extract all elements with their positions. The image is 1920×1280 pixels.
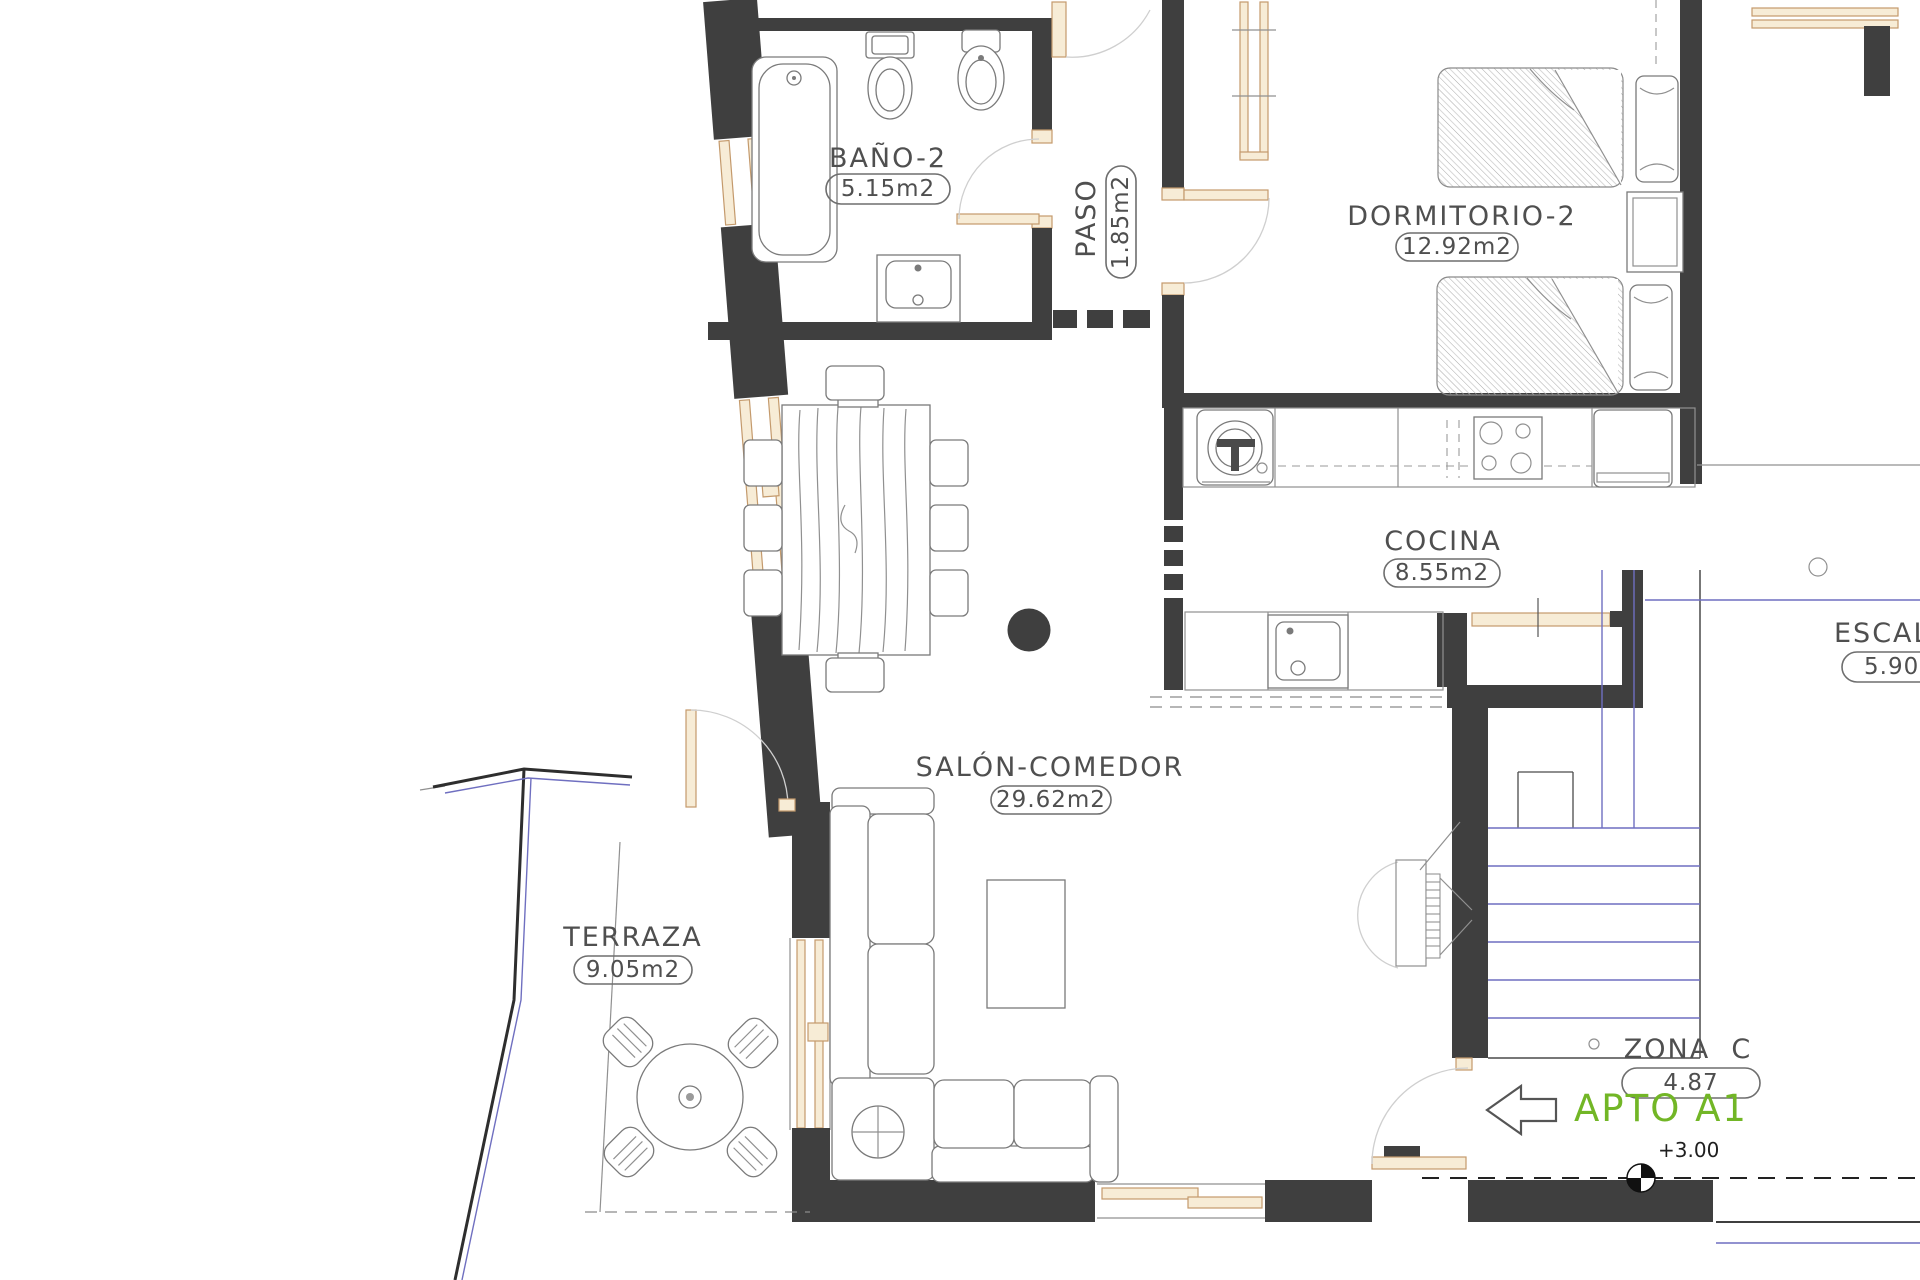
wall-kitchen-top xyxy=(1183,393,1695,408)
dining-table xyxy=(782,398,930,662)
bathtub xyxy=(752,57,837,262)
kitchen-sink-counter xyxy=(1185,612,1443,690)
room-label-salon: SALÓN-COMEDOR 29.62m2 xyxy=(916,751,1185,814)
floorplan-page: BAÑO-2 5.15m2 PASO 1.85m2 DORMITORIO-2 1… xyxy=(0,0,1920,1280)
svg-text:12.92m2: 12.92m2 xyxy=(1402,234,1512,260)
svg-text:COCINA: COCINA xyxy=(1384,526,1502,557)
svg-text:8.55m2: 8.55m2 xyxy=(1395,560,1489,586)
window-top-right xyxy=(1752,8,1898,16)
window-west-1 xyxy=(719,141,736,226)
apto-label: APTO A1 xyxy=(1574,1087,1748,1130)
wall-stairs-left xyxy=(1452,708,1488,1058)
svg-text:PASO: PASO xyxy=(1071,178,1102,257)
room-label-dormitorio: DORMITORIO-2 12.92m2 xyxy=(1347,201,1576,261)
wall-bath-top xyxy=(746,18,1052,31)
fridge xyxy=(1594,410,1672,487)
svg-text:ESCAL: ESCAL xyxy=(1834,618,1920,649)
column xyxy=(1008,609,1051,652)
floorplan-drawing: BAÑO-2 5.15m2 PASO 1.85m2 DORMITORIO-2 1… xyxy=(0,0,1920,1280)
bidet xyxy=(958,30,1004,110)
toilet xyxy=(866,32,914,119)
wall-counter-end xyxy=(1437,613,1467,687)
door-paso-top xyxy=(1052,2,1066,57)
room-label-terraza: TERRAZA 9.05m2 xyxy=(562,922,702,984)
window-west-2 xyxy=(739,400,764,587)
terrace-table xyxy=(637,1044,743,1150)
room-label-escalera: ESCAL 5.90 xyxy=(1834,618,1920,682)
door-bathroom xyxy=(957,214,1039,224)
wall-bath-right xyxy=(1032,31,1052,130)
washing-machine xyxy=(1197,410,1273,485)
wall-bottom-right xyxy=(1468,1180,1713,1222)
door-terraza xyxy=(686,710,696,807)
level-marker xyxy=(1627,1164,1655,1192)
bed-2 xyxy=(1437,277,1672,395)
washbasin xyxy=(877,255,960,322)
sofa xyxy=(830,788,1118,1182)
svg-text:SALÓN-COMEDOR: SALÓN-COMEDOR xyxy=(916,751,1185,783)
svg-text:5.15m2: 5.15m2 xyxy=(841,176,935,202)
svg-text:ZONA C: ZONA C xyxy=(1624,1034,1752,1065)
wall-salon-west xyxy=(792,802,830,938)
window-salon-west xyxy=(790,938,830,1130)
svg-text:29.62m2: 29.62m2 xyxy=(996,787,1106,813)
level-label: +3.00 xyxy=(1658,1138,1719,1162)
wall-bath-bottom xyxy=(708,322,1052,340)
nightstand xyxy=(1627,192,1683,272)
terraza xyxy=(420,769,810,1280)
room-label-paso: PASO 1.85m2 xyxy=(1071,166,1136,278)
wall-bottom-mid xyxy=(1265,1180,1372,1222)
svg-text:5.90: 5.90 xyxy=(1864,654,1919,680)
wall-paso-dashed xyxy=(1053,310,1150,328)
wall-dorm-left xyxy=(1162,0,1184,188)
kitchen xyxy=(1150,408,1695,707)
pass-through-window xyxy=(1472,598,1627,637)
entrance-arrow-icon xyxy=(1487,1086,1556,1134)
window-bottom xyxy=(1097,1184,1265,1218)
svg-text:TERRAZA: TERRAZA xyxy=(562,922,702,953)
bed-1 xyxy=(1438,68,1678,187)
svg-text:BAÑO-2: BAÑO-2 xyxy=(829,142,947,174)
coffee-table xyxy=(987,880,1065,1008)
room-label-cocina: COCINA 8.55m2 xyxy=(1384,526,1502,587)
dormitorio-furniture xyxy=(1232,2,1683,395)
svg-text:DORMITORIO-2: DORMITORIO-2 xyxy=(1347,201,1576,232)
svg-text:1.85m2: 1.85m2 xyxy=(1108,175,1134,269)
stove xyxy=(1474,417,1542,479)
closet xyxy=(1232,2,1276,160)
wall-kitchen-left xyxy=(1164,408,1183,520)
room-label-bano: BAÑO-2 5.15m2 xyxy=(826,142,950,204)
door-entrance xyxy=(1372,1157,1466,1169)
wall-stairs-top xyxy=(1447,685,1627,708)
stairs xyxy=(1488,465,1920,1058)
svg-text:9.05m2: 9.05m2 xyxy=(586,957,680,983)
door-dormitorio xyxy=(1184,190,1268,200)
wall-bottom-left xyxy=(792,1180,1095,1222)
